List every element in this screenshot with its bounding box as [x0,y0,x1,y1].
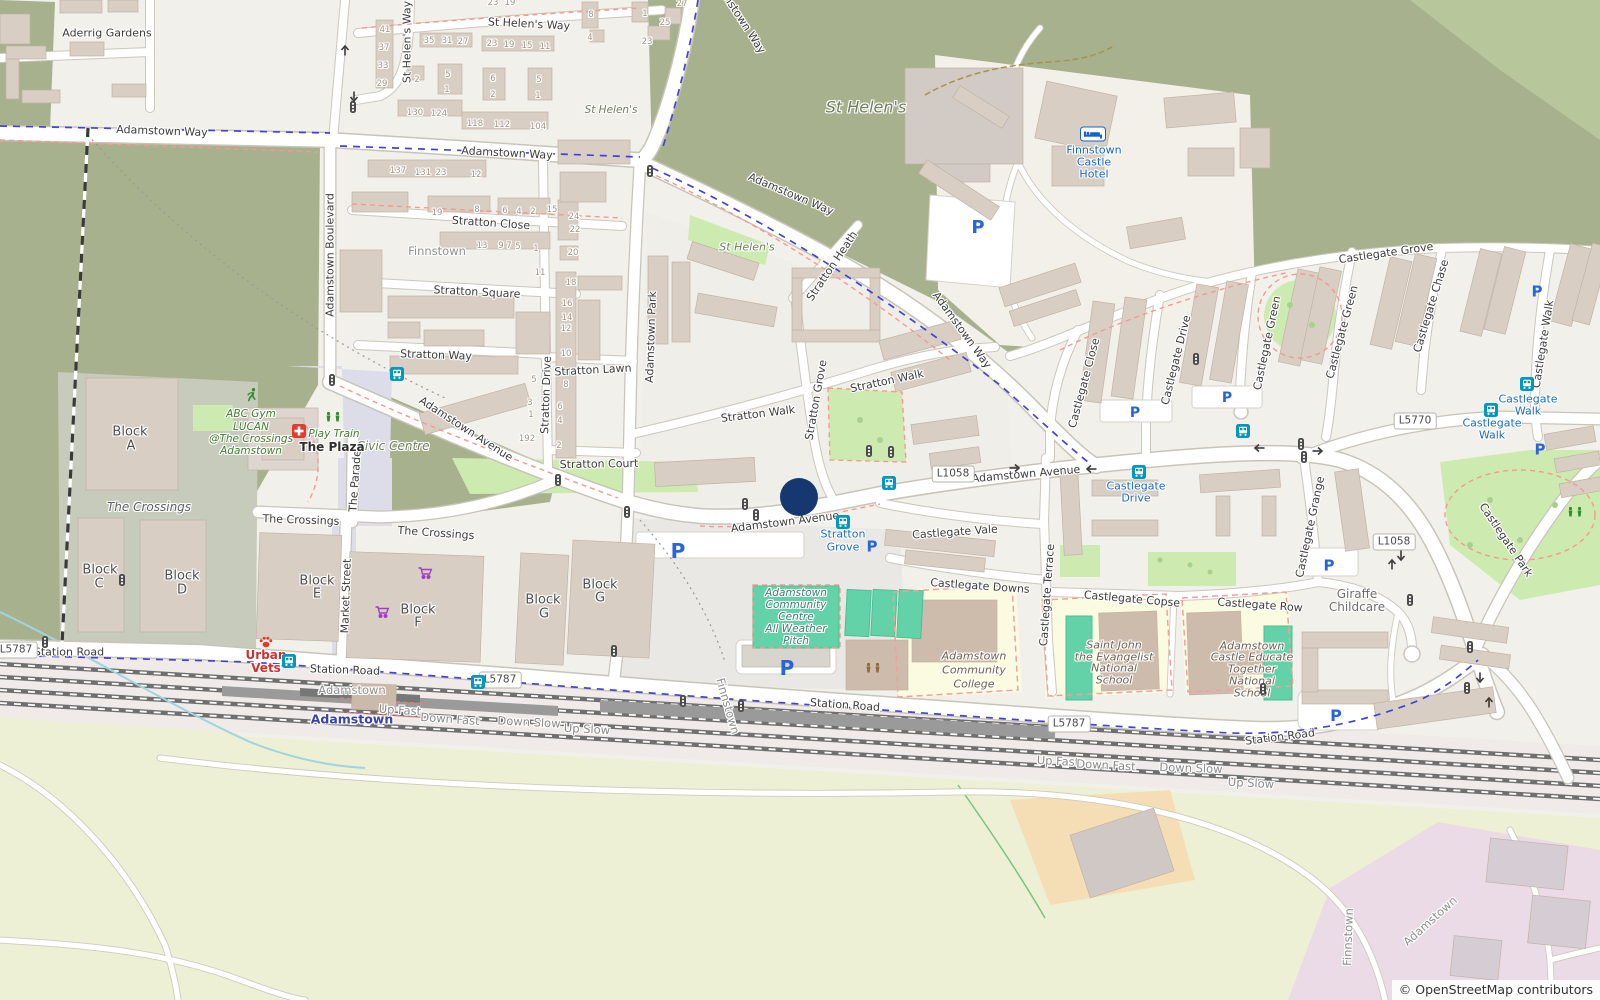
label-33: 33 [378,61,389,71]
label-104: 104 [530,122,546,132]
label-the-evangelist: the Evangelist [1075,651,1154,664]
label-6: 6 [490,74,495,84]
parking-icon: P [1324,559,1335,574]
attribution-text[interactable]: © OpenStreetMap contributors [1399,982,1593,997]
bus-icon [836,515,850,529]
label-the-crossings: The Crossings [107,500,191,514]
label-4: 4 [516,207,521,217]
label-national: National [1091,662,1137,675]
signal-icon [647,165,653,177]
arrow-icon [1483,697,1496,707]
label-finnstown: Finnstown [1340,908,1356,966]
label-a: A [127,439,136,454]
label-castlegate-chase: Castlegate Chase [1411,258,1452,354]
label-college: College [953,678,994,691]
arrow-icon [348,92,361,102]
label-castlegate: Castlegate [1498,393,1557,406]
label-1: 1 [528,410,533,420]
arrow-icon [1386,559,1399,569]
label-block: Block [582,578,617,593]
label-stratton-grove: Stratton Grove [803,359,830,441]
label-childcare: Childcare [1329,600,1385,614]
label-23: 23 [436,168,447,178]
label-1: 1 [444,85,449,95]
label-stratton-court: Stratton Court [560,457,639,471]
label-19: 19 [432,208,443,218]
label-station-road: Station Road [34,646,104,659]
label-vets: Vets [251,661,281,675]
label-stratton-close: Stratton Close [451,214,530,232]
label-adamstown-way: Adamstown Way [930,289,994,371]
label-10: 10 [561,349,572,359]
label-down-slow: Down Slow [497,713,561,730]
label-stratton-drive: Stratton Drive [538,356,554,434]
label-together: Together [1228,663,1276,676]
label-41: 41 [380,25,391,35]
label-130: 130 [407,108,423,118]
label-11: 11 [535,268,546,278]
label-the-crossings: The Crossings [262,512,339,528]
label-19: 19 [505,0,516,8]
label-block: Block [164,569,199,584]
label-adamstown-way: Adamstown Way [708,0,769,56]
signal-icon [742,498,748,510]
label-35: 35 [424,36,435,46]
label-14: 14 [562,313,573,323]
label-5: 5 [515,242,520,252]
bus-icon [471,675,485,689]
label-hotel: Hotel [1079,168,1108,181]
firstaid-icon [292,424,306,438]
label-block: Block [112,425,147,440]
label-adamstown: Adamstown [1400,893,1459,949]
label-1: 1 [642,9,647,19]
label-29: 29 [377,79,388,89]
label-6: 6 [502,206,507,216]
label-castle: Castle [1077,156,1111,169]
label-e: E [313,587,321,602]
label-adamstown: Adamstown [220,445,282,457]
label-15: 15 [547,205,558,215]
map-canvas[interactable]: Aderrig GardensAdamstown WaySt Helen's W… [0,0,1600,1000]
label-castlegate-walk: Castlegate Walk [1530,299,1557,389]
bus-icon [1520,377,1534,391]
signal-icon [42,636,48,648]
label-st-helen-s: St Helen's [585,104,638,116]
arrow-icon [1085,464,1098,474]
label-stratton: Stratton [821,528,866,541]
label-15: 15 [522,41,533,51]
label-civic-centre: Civic Centre [357,439,430,453]
label-l5770: L5770 [1394,413,1437,430]
bus-icon [1236,424,1250,438]
label-up-slow: Up Slow [564,721,611,737]
label-down-fast: Down Fast [420,710,480,728]
signal-icon [555,474,561,486]
label-l5787: L5787 [479,672,522,689]
label-school: School [1096,674,1133,687]
location-marker[interactable] [780,478,818,516]
arrow-icon [1474,673,1487,683]
parking-icon: P [1535,443,1546,458]
label-4: 4 [587,33,592,43]
signal-icon [1467,641,1473,653]
label-walk: Walk [1515,405,1541,418]
label-castlegate-row: Castlegate Row [1217,596,1303,615]
label-l5787: L5787 [1048,716,1091,733]
parking-icon: P [671,541,686,561]
signal-icon [624,506,630,518]
label-lucan: LUCAN [233,421,269,433]
label-all-weather: All Weather [765,623,826,635]
parking-icon: P [1130,406,1140,420]
label-2: 2 [414,75,419,85]
label-f: F [414,616,421,631]
label-station-road: Station Road [810,696,881,714]
label-walk: Walk [1479,429,1505,442]
label-castlegate: Castlegate [1462,417,1521,430]
label-2: 2 [530,207,535,217]
arrow-icon [1312,446,1325,456]
label-1: 1 [535,91,540,101]
label-adamstown-way: Adamstown Way [746,170,835,218]
playground-icon [1566,507,1584,518]
arrow-icon [1253,443,1266,453]
signal-icon [1298,438,1304,450]
label-st-helen-s: St Helen's [719,241,774,254]
signal-icon [866,445,872,457]
label-l1058: L1058 [1373,534,1416,551]
label-6: 6 [557,402,562,412]
label-up-fast: Up Fast [378,702,421,719]
label-station-road: Station Road [1244,726,1315,747]
playground-icon [864,663,882,674]
label-down-fast: Down Fast [1076,756,1136,773]
signal-icon [1260,683,1266,695]
label-9: 9 [498,241,503,251]
label-centre: Centre [778,611,813,623]
label-giraffe: Giraffe [1337,587,1378,601]
label-castlegate-copse: Castlegate Copse [1083,588,1180,609]
signal-icon [611,645,617,657]
signal-icon [119,574,125,586]
label-finnstown: Finnstown [713,676,742,735]
label-market-street: Market Street [338,558,354,633]
label-8: 8 [474,205,479,215]
label-adamstown: Adamstown [942,650,1007,663]
label-l1058: L1058 [932,466,975,483]
label-adamstown: Adamstown [765,587,827,599]
label-5: 5 [531,375,536,385]
label-castlegate-terrace: Castlegate Terrace [1037,543,1057,646]
osm-attribution[interactable]: © OpenStreetMap contributors [1392,980,1600,1000]
label-aderrig-gardens: Aderrig Gardens [62,27,152,40]
bus-icon [882,476,896,490]
parking-icon: P [1532,285,1543,300]
label-37: 37 [379,43,390,53]
parking-icon: P [971,219,984,237]
label-adamstown-way: Adamstown Way [461,144,553,162]
label-l5787: L5787 [0,642,37,659]
label-block: Block [400,603,435,618]
label-16: 16 [562,299,573,309]
parking-icon: P [1222,391,1232,405]
label-castlegate-vale: Castlegate Vale [912,523,999,542]
label-st-helen-s-way: St Helen's Way [488,15,571,32]
label--the-crossings: @The Crossings [209,433,293,445]
cart-icon [418,567,433,580]
paw-icon [259,636,273,649]
signal-icon [888,446,894,458]
label-131: 131 [415,168,431,178]
label-12: 12 [471,170,482,180]
label-the-crossings: The Crossings [397,524,475,542]
label-1: 1 [533,244,538,254]
label-castlegate-grove: Castlegate Grove [1338,240,1434,266]
runner-icon [245,388,259,403]
label-118: 118 [467,119,483,129]
bus-icon [282,654,296,668]
label-stratton-square: Stratton Square [433,283,521,301]
label-up-fast: Up Fast [1036,753,1079,769]
label-11: 11 [540,42,551,52]
label-finnstown: Finnstown [408,244,466,258]
signal-icon [753,509,759,521]
label-adamstown-park: Adamstown Park [643,291,659,383]
label-castlegate: Castlegate [1106,480,1165,493]
arrow-icon [1009,463,1022,473]
label-d: D [177,583,187,598]
signal-icon [350,101,356,113]
label-urban: Urban [246,648,287,662]
label-112: 112 [494,120,510,130]
label-castlegate-park: Castlegate Park [1476,501,1535,580]
label-national: National [1229,675,1275,688]
bed-icon [1080,127,1106,142]
label-27: 27 [458,37,469,47]
label-adamstown-avenue: Adamstown Avenue [730,509,840,535]
label-st-helen-s-way: St Helen's Way [401,1,414,83]
signal-icon [738,700,744,712]
label-up-slow: Up Slow [1228,775,1275,791]
cart-icon [375,606,390,619]
label-adamstown-avenue: Adamstown Avenue [971,463,1081,485]
label-saint-john: Saint John [1086,639,1141,652]
label-stratton-heath: Stratton Heath [804,229,860,304]
parking-icon: P [780,658,795,678]
label-12: 12 [561,324,572,334]
label-19: 19 [504,40,515,50]
label-23: 23 [642,37,653,47]
label-abc-gym: ABC Gym [226,408,276,420]
label-c: C [94,577,103,592]
label-drive: Drive [1121,492,1150,505]
bus-icon [390,367,404,381]
label-adamstown: Adamstown [311,712,394,727]
label-pitch: Pitch [783,635,809,647]
label-castle-educate: Castle Educate [1211,651,1294,664]
label-8: 8 [588,10,593,20]
label-g: G [595,591,605,606]
label-4: 4 [557,416,562,426]
label-block: Block [525,593,560,608]
label-7: 7 [506,241,511,251]
label-station-road: Station Road [310,662,381,677]
label-st-helen-s: St Helen's [826,98,907,117]
label-24: 24 [569,212,580,222]
label-grove: Grove [827,541,860,554]
label-stratton-way: Stratton Way [400,347,472,362]
label-adamstown-boulevard: Adamstown Boulevard [324,193,337,317]
label-23: 23 [487,39,498,49]
playground-icon [324,412,342,423]
signal-icon [680,695,686,707]
label-137: 137 [390,166,406,176]
label-castlegate-downs: Castlegate Downs [930,576,1030,596]
label-5: 5 [445,70,450,80]
arrow-icon [1395,551,1408,561]
label-down-slow: Down Slow [1159,760,1223,776]
label-stratton-walk: Stratton Walk [720,403,796,425]
label-adamstown-avenue: Adamstown Avenue [417,394,515,464]
bus-icon [1484,403,1498,417]
label-124: 124 [431,109,447,119]
label-community: Community [942,664,1006,677]
label-31: 31 [442,36,453,46]
label-18: 18 [566,278,577,288]
label-castlegate-drive: Castlegate Drive [1159,314,1194,406]
label-5: 5 [536,75,541,85]
label-3: 3 [527,398,532,408]
label-community: Community [766,599,827,611]
label-castlegate-grange: Castlegate Grange [1293,475,1327,579]
label-block: Block [299,574,334,589]
signal-icon [1301,451,1307,463]
label-block: Block [82,563,117,578]
label-play-train: Play Train [308,428,359,440]
parking-icon: P [1330,708,1342,724]
label-2: 2 [490,90,495,100]
label-22: 22 [570,225,581,235]
label-stratton-walk: Stratton Walk [849,367,925,395]
label-stratton-lawn: Stratton Lawn [554,361,632,378]
label-castlegate-green: Castlegate Green [1323,284,1360,380]
label-adamstown: Adamstown [318,683,385,697]
label-20: 20 [568,248,579,258]
label-the-parade: The Parade [346,450,363,513]
bus-icon [1132,465,1146,479]
signal-icon [329,374,335,386]
label-8: 8 [563,380,568,390]
label-adamstown: Adamstown [1220,640,1285,653]
signal-icon [1407,594,1413,606]
label-27: 27 [677,0,688,9]
arrow-icon [339,45,352,55]
label-the-plaza: The Plaza [299,440,364,454]
label-g: G [539,607,549,622]
label-25: 25 [660,18,671,28]
signal-icon [1193,353,1199,365]
label-castlegate-close: Castlegate Close [1066,337,1103,430]
parking-icon: P [867,540,878,555]
label-192: 192 [519,434,535,444]
label-23: 23 [488,0,499,8]
label-2: 2 [556,441,561,451]
label-castlegate-green: Castlegate Green [1251,295,1284,392]
label-13: 13 [477,241,488,251]
label-finnstown: Finnstown [1066,144,1121,157]
label-school: School [1234,687,1271,700]
signal-icon [1464,682,1470,694]
label-adamstown-way: Adamstown Way [116,123,208,139]
